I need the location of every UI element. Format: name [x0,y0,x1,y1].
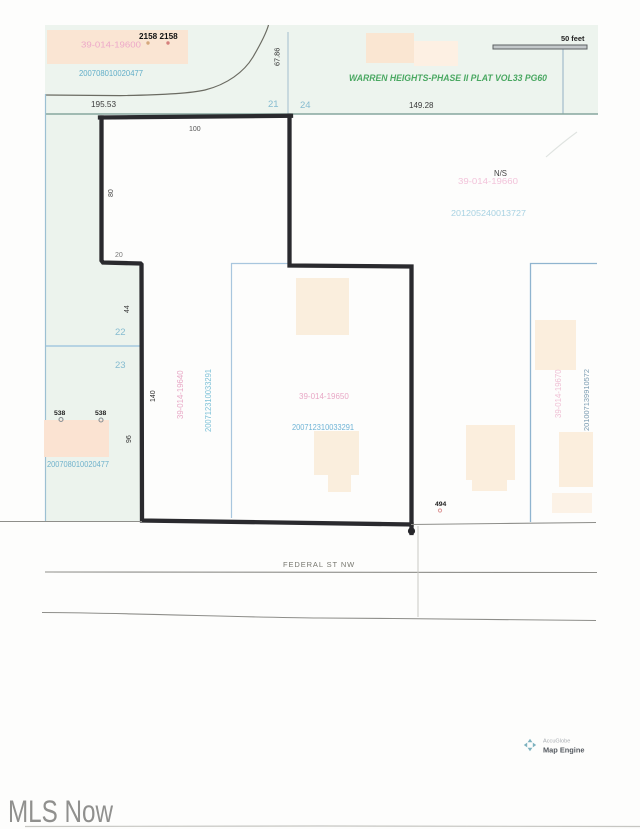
svg-text:200712310033291: 200712310033291 [204,369,213,432]
svg-text:21: 21 [268,99,279,110]
svg-text:AccuGlobe: AccuGlobe [543,739,570,745]
svg-text:67.86: 67.86 [273,48,282,66]
svg-text:201205240013727: 201205240013727 [451,209,526,218]
svg-text:200708010020477: 200708010020477 [47,460,109,469]
svg-text:50 feet: 50 feet [561,34,585,43]
svg-text:20: 20 [115,252,123,259]
svg-text:22: 22 [115,327,126,338]
svg-text:200712310033291: 200712310033291 [292,422,354,432]
svg-text:FEDERAL ST NW: FEDERAL ST NW [283,560,355,569]
svg-text:39-014-19660: 39-014-19660 [458,177,519,186]
svg-text:195.53: 195.53 [91,100,116,109]
svg-text:39-014-19640: 39-014-19640 [176,370,185,419]
svg-text:44: 44 [124,305,131,313]
svg-text:39-014-19670: 39-014-19670 [554,369,563,418]
svg-text:538: 538 [95,410,107,417]
svg-text:24: 24 [300,100,311,111]
svg-text:100: 100 [189,126,201,133]
svg-text:80: 80 [108,189,115,197]
svg-text:140: 140 [150,390,157,402]
svg-text:149.28: 149.28 [409,101,434,110]
svg-text:39-014-19600: 39-014-19600 [81,41,142,50]
svg-text:2158 2158: 2158 2158 [139,32,178,41]
svg-text:494: 494 [435,501,447,508]
svg-text:538: 538 [54,410,66,417]
svg-text:MLS Now: MLS Now [8,793,113,829]
svg-text:200708010020477: 200708010020477 [79,68,143,78]
svg-text:23: 23 [115,360,126,371]
svg-text:201007139910572: 201007139910572 [582,369,591,431]
svg-text:Map Engine: Map Engine [543,746,584,755]
svg-text:WARREN HEIGHTS-PHASE II PLAT V: WARREN HEIGHTS-PHASE II PLAT VOL33 PG60 [349,73,548,83]
svg-text:39-014-19650: 39-014-19650 [299,392,349,401]
svg-text:96: 96 [126,435,133,443]
